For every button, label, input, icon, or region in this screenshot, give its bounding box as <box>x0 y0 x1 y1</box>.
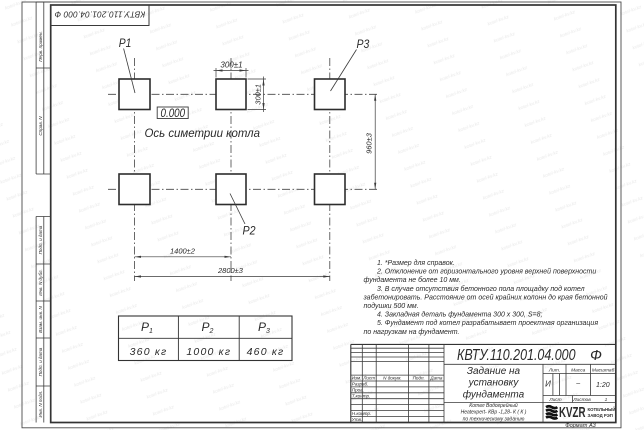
svg-text:Т.контр.: Т.контр. <box>352 393 371 398</box>
svg-text:ЗАВОД РЭП: ЗАВОД РЭП <box>588 413 613 418</box>
svg-text:1400±2: 1400±2 <box>170 247 196 256</box>
svg-text:Листов: Листов <box>572 397 591 403</box>
svg-text:2800±3: 2800±3 <box>217 266 244 275</box>
svg-text:Инв. N дубл.: Инв. N дубл. <box>38 269 43 296</box>
svg-text:P1: P1 <box>119 36 132 50</box>
svg-text:КВТУ.110.201.04.000 Ф: КВТУ.110.201.04.000 Ф <box>54 10 145 19</box>
svg-text:Разраб.: Разраб. <box>352 382 369 387</box>
svg-text:Лист: Лист <box>548 397 561 403</box>
svg-text:по техническому заданию: по техническому заданию <box>463 417 525 423</box>
svg-text:Лит.: Лит. <box>548 368 560 374</box>
svg-text:Формат А3: Формат А3 <box>565 423 596 429</box>
svg-text:Котел Водогрейный: Котел Водогрейный <box>469 402 518 409</box>
svg-text:Утв.: Утв. <box>352 417 362 422</box>
svg-text:1:20: 1:20 <box>596 382 610 389</box>
svg-text:Ось симетрии котла: Ось симетрии котла <box>145 126 261 140</box>
svg-text:Подп. и дата: Подп. и дата <box>38 347 43 376</box>
svg-text:фундамента: фундамента <box>463 388 525 400</box>
svg-text:P3: P3 <box>357 37 370 51</box>
svg-text:И: И <box>545 380 551 389</box>
svg-text:Heatexpert- КВр -1,28- К ( К ): Heatexpert- КВр -1,28- К ( К ) <box>461 410 527 416</box>
svg-text:2. Отклонение от горизонтальн: 2. Отклонение от горизонтального уровня … <box>376 268 596 276</box>
svg-text:КВТУ.110.201.04.000: КВТУ.110.201.04.000 <box>457 347 576 364</box>
svg-text:5. Фундамент под котел разраб: 5. Фундамент под котел разрабатывает про… <box>377 319 598 327</box>
svg-text:0.000: 0.000 <box>161 106 186 120</box>
svg-text:по нагрузкам на фундамент.: по нагрузкам на фундамент. <box>364 328 460 336</box>
svg-text:Дата: Дата <box>429 376 443 381</box>
svg-text:300±1: 300±1 <box>220 61 242 70</box>
svg-text:Изм.: Изм. <box>352 376 362 381</box>
svg-text:N докум.: N докум. <box>383 376 402 381</box>
svg-text:Масштаб: Масштаб <box>592 368 615 374</box>
svg-text:960±3: 960±3 <box>364 132 373 154</box>
svg-text:Пров.: Пров. <box>352 388 364 393</box>
svg-text:Задание на: Задание на <box>467 366 521 377</box>
svg-text:забетонировать. Расстояние от: забетонировать. Расстояние от осей крайн… <box>363 293 608 301</box>
svg-text:Ф: Ф <box>590 347 602 364</box>
svg-text:Масса: Масса <box>571 368 586 374</box>
svg-text:Подп.: Подп. <box>413 376 425 381</box>
svg-text:3. В случае отсутствия бетонн: 3. В случае отсутствия бетонного пола пл… <box>377 285 585 293</box>
svg-text:360 кг: 360 кг <box>130 346 168 358</box>
svg-text:КОТЕЛЬНЫЙ: КОТЕЛЬНЫЙ <box>588 407 616 412</box>
svg-text:Н.контр.: Н.контр. <box>352 411 371 416</box>
svg-text:4. Закладная деталь фундамент: 4. Закладная деталь фундамента 300 х 300… <box>377 311 542 319</box>
svg-text:Взам. инв. N: Взам. инв. N <box>38 305 43 332</box>
svg-text:–: – <box>575 381 580 388</box>
svg-text:Инв. N подл.: Инв. N подл. <box>38 391 43 418</box>
svg-text:KVZR: KVZR <box>559 405 586 421</box>
svg-text:подушки 500 мм.: подушки 500 мм. <box>364 302 419 310</box>
svg-text:Перв. примен.: Перв. примен. <box>38 31 43 62</box>
svg-text:Лист: Лист <box>362 376 375 381</box>
svg-text:1. *Размер для справок.: 1. *Размер для справок. <box>377 259 455 267</box>
svg-text:Справ. N: Справ. N <box>38 116 43 136</box>
svg-text:установку: установку <box>468 378 520 389</box>
svg-text:300±1: 300±1 <box>253 84 262 105</box>
svg-text:Подп. и дата: Подп. и дата <box>38 225 43 254</box>
svg-text:460 кг: 460 кг <box>247 346 285 358</box>
svg-text:1: 1 <box>605 397 608 403</box>
svg-text:1000 кг: 1000 кг <box>186 346 231 358</box>
svg-text:фундамента не более 10 мм.: фундамента не более 10 мм. <box>364 276 461 284</box>
svg-text:P2: P2 <box>243 223 256 237</box>
